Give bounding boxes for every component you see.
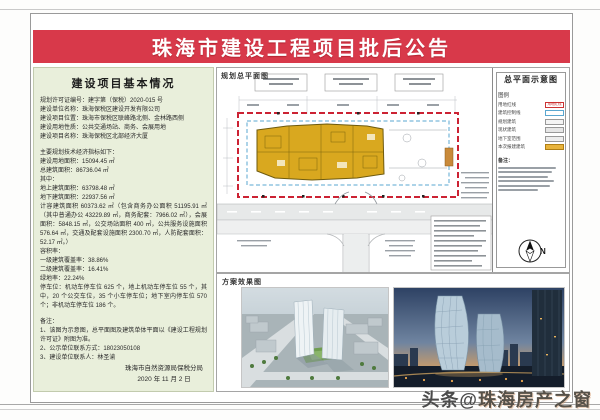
legend-note-line — [498, 167, 556, 169]
info-line: 地下建筑面积：22937.56 ㎡ — [40, 194, 207, 203]
info-line: 容积率： — [40, 248, 207, 257]
info-panel-title: 建设项目基本情况 — [40, 75, 207, 91]
project-info-panel: 建设项目基本情况 规划许可证编号：建字第（保税）2020-015 号建设单位名称… — [33, 67, 214, 392]
legend-item: 地下室范围 — [498, 136, 564, 142]
legend-item: 规划建筑 — [498, 119, 564, 125]
legend-item-label: 地下室范围 — [498, 136, 521, 142]
site-plan-label: 规划总平面图 — [221, 71, 269, 81]
legend-item-label: 现状建筑 — [498, 127, 516, 133]
legend-note-line — [498, 176, 548, 178]
legend-items: 用地红线用地红线建筑控制线规划建筑现状建筑地下室范围本次报建建筑 — [493, 102, 569, 151]
legend-item: 本次报建建筑 — [498, 144, 564, 150]
watermark-prefix: 头条@ — [421, 390, 478, 410]
site-plan-panel: 规划总平面图 — [216, 67, 570, 273]
info-line: 建设单位名称：珠海保税区建设开发有限公司 — [40, 106, 207, 115]
legend-panel: 总平面示意图 图例 用地红线用地红线建筑控制线规划建筑现状建筑地下室范围本次报建… — [492, 68, 569, 272]
info-line: 2、公示单位联系方式：18023050108 — [40, 345, 207, 354]
issuing-agency: 珠海市自然资源局保税分局 — [125, 363, 203, 374]
legend-item-swatch — [545, 119, 564, 125]
info-line: 建设用地性质：公共交通场站、商务、会展用地 — [40, 124, 207, 133]
info-line: 地上建筑面积：63798.48 ㎡ — [40, 185, 207, 194]
legend-note-line — [498, 189, 538, 191]
info-line: 总建筑面积：86736.04 ㎡ — [40, 167, 207, 176]
info-line: 1、该图为示意图，总平面图及建筑单体平面以《建设工程规划许可证》附图为准。 — [40, 327, 207, 345]
photo-top-edge — [0, 9, 600, 10]
north-arrow-icon: N — [516, 236, 546, 266]
info-spacer — [40, 142, 207, 149]
info-line: 一级建筑覆盖率：38.86% — [40, 257, 207, 266]
info-lines: 规划许可证编号：建字第（保税）2020-015 号建设单位名称：珠海保税区建设开… — [40, 97, 207, 363]
info-line: 规划许可证编号：建字第（保税）2020-015 号 — [40, 97, 207, 106]
info-line: 其中： — [40, 176, 207, 185]
legend-item-label: 本次报建建筑 — [498, 144, 525, 150]
signature-block: 珠海市自然资源局保税分局 2020 年 11 月 2 日 — [125, 363, 203, 385]
info-line: 建设项目名称：珠海保税区北部经济大厦 — [40, 133, 207, 142]
info-line: 建设项目位置：珠海市保税区联峰路北侧、金林路西侧 — [40, 115, 207, 124]
info-line: 主要规划技术经济指标如下： — [40, 149, 207, 158]
legend-item: 建筑控制线 — [498, 110, 564, 116]
render-towers-dusk — [393, 287, 565, 388]
legend-notes-label: 备注： — [498, 157, 569, 164]
renders-label: 方案效果图 — [222, 277, 262, 287]
legend-item: 用地红线用地红线 — [498, 102, 564, 108]
info-line: 停车位：机动车停车位 625 个，地上机动车停车位 55 个，其中，20 个公交… — [40, 284, 207, 311]
legend-item-swatch — [545, 110, 564, 116]
info-line: 计容建筑面积 60373.62 ㎡（包含商务办公面积 51195.91 ㎡（其中… — [40, 203, 207, 248]
info-line: 建设用地面积：15094.45 ㎡ — [40, 158, 207, 167]
issue-date: 2020 年 11 月 2 日 — [125, 374, 203, 385]
legend-key-label: 图例 — [498, 91, 569, 99]
legend-notes — [493, 167, 569, 192]
north-letter: N — [540, 247, 546, 256]
legend-item-swatch — [545, 136, 564, 142]
render-aerial-day — [241, 287, 389, 388]
info-spacer — [40, 311, 207, 318]
info-line: 备注： — [40, 318, 207, 327]
site-plan-drawing — [217, 68, 493, 272]
legend-note-line — [498, 185, 550, 187]
notice-title: 珠海市建设工程项目批后公告 — [152, 32, 451, 61]
info-line: 3、建设单位联系人：林圣渝 — [40, 354, 207, 363]
legend-item-swatch — [545, 144, 564, 150]
info-line: 二级建筑覆盖率：16.41% — [40, 266, 207, 275]
watermark-brand: 珠海房产之窗 — [478, 390, 592, 410]
watermark: 头条@珠海房产之窗 — [0, 386, 592, 412]
legend-item-swatch — [545, 127, 564, 133]
legend-note-line — [498, 180, 554, 182]
legend-item-label: 规划建筑 — [498, 119, 516, 125]
legend-item-label: 用地红线 — [498, 102, 516, 108]
legend-item: 现状建筑 — [498, 127, 564, 133]
legend-item-swatch: 用地红线 — [545, 102, 564, 108]
legend-item-label: 建筑控制线 — [498, 110, 521, 116]
notice-banner: 珠海市建设工程项目批后公告 — [33, 30, 570, 63]
legend-title: 总平面示意图 — [493, 74, 569, 85]
legend-note-line — [498, 171, 552, 173]
info-line: 绿地率：22.24% — [40, 275, 207, 284]
renders-panel: 方案效果图 — [216, 273, 570, 392]
